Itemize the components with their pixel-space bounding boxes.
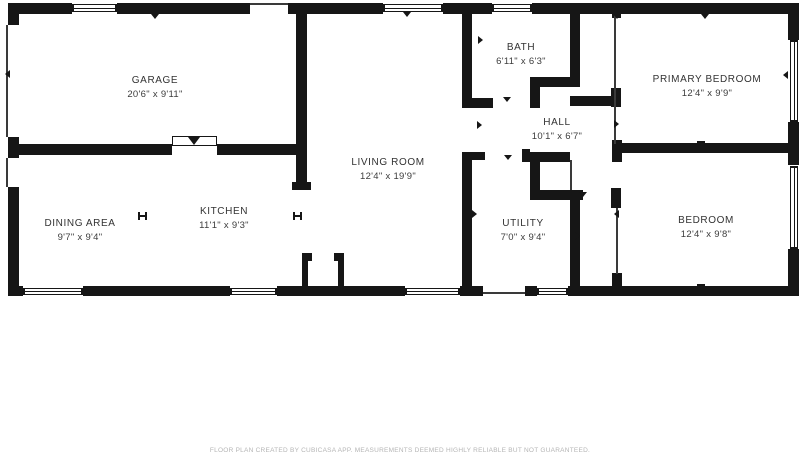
room-name: BEDROOM [678,214,734,228]
wall-segment [8,3,19,25]
wall-segment [788,249,799,296]
measure-tick [697,141,705,150]
room-dimensions: 9'7" x 9'4" [44,231,115,245]
room-label-utility: UTILITY 7'0" x 9'4" [501,217,546,245]
opening-line [483,292,525,294]
window-glyph [405,288,460,295]
room-label-hall: HALL 10'1" x 6'7" [532,116,582,144]
wall-segment [530,77,580,87]
room-dimensions: 12'4" x 9'9" [653,87,762,101]
wall-segment [522,149,530,155]
door-tick [614,120,619,128]
opening-line [6,25,8,137]
door-tick [477,121,482,129]
room-dimensions: 20'6" x 9'11" [127,88,182,102]
wall-segment [8,286,23,296]
wall-segment [8,144,172,155]
wall-segment [611,88,621,107]
door-tick [614,210,619,218]
door-tick [403,12,411,17]
room-label-dining-area: DINING AREA 9'7" x 9'4" [44,217,115,245]
room-boundary-tick [293,212,302,220]
room-name: DINING AREA [44,217,115,231]
wall-segment [611,188,621,208]
wall-segment [217,144,307,155]
wall-segment [612,143,799,153]
wall-segment [117,3,250,14]
room-dimensions: 12'4" x 19'9" [351,170,424,184]
room-label-living-room: LIVING ROOM 12'4" x 19'9" [351,156,424,184]
door-tick [504,155,512,160]
wall-segment [462,152,472,286]
room-name: GARAGE [127,74,182,88]
window-glyph [23,288,83,295]
wall-segment [292,182,311,190]
wall-segment [8,187,19,296]
room-name: BATH [496,41,546,55]
room-boundary-tick [138,212,147,220]
wall-segment [530,87,540,108]
wall-segment [277,286,405,296]
window-glyph [492,4,532,12]
room-label-primary-bedroom: PRIMARY BEDROOM 12'4" x 9'9" [653,73,762,101]
room-name: UTILITY [501,217,546,231]
window-glyph [383,4,443,12]
wall-segment [570,198,580,286]
door-tick [701,14,709,19]
door-tick [151,14,159,19]
window-glyph [72,4,117,12]
room-dimensions: 7'0" x 9'4" [501,231,546,245]
entrance-arrow-icon [188,137,200,145]
door-tick [613,14,621,19]
window-glyph [790,40,798,122]
room-label-bedroom: BEDROOM 12'4" x 9'8" [678,214,734,242]
wall-segment [462,98,493,108]
wall-segment [612,273,622,286]
disclaimer-text: FLOOR PLAN CREATED BY CUBICASA APP. MEAS… [0,447,800,454]
door-tick [5,70,10,78]
room-name: PRIMARY BEDROOM [653,73,762,87]
wall-segment [302,253,312,261]
wall-segment [530,162,540,193]
wall-segment [83,286,230,296]
window-glyph [790,166,798,249]
opening-line [250,3,288,5]
door-tick [503,97,511,102]
door-tick [579,192,587,197]
wall-segment [788,3,799,40]
room-label-kitchen: KITCHEN 11'1" x 9'3" [199,205,249,233]
room-label-garage: GARAGE 20'6" x 9'11" [127,74,182,102]
room-dimensions: 11'1" x 9'3" [199,219,249,233]
wall-segment [525,286,537,296]
room-name: HALL [532,116,582,130]
wall-segment [472,152,485,160]
wall-segment [296,3,307,190]
room-name: LIVING ROOM [351,156,424,170]
wall-segment [460,286,483,296]
room-dimensions: 6'11" x 6'3" [496,55,546,69]
door-tick [783,71,788,79]
measure-tick [697,284,705,293]
door-tick [472,210,477,218]
floor-plan: GARAGE 20'6" x 9'11" LIVING ROOM 12'4" x… [0,0,800,463]
room-dimensions: 12'4" x 9'8" [678,228,734,242]
wall-segment [568,286,799,296]
opening-line [6,158,8,187]
wall-segment [570,3,580,87]
room-name: KITCHEN [199,205,249,219]
room-dimensions: 10'1" x 6'7" [532,130,582,144]
wall-segment [334,253,344,261]
room-label-bath: BATH 6'11" x 6'3" [496,41,546,69]
door-tick [575,232,580,240]
opening-line [570,160,572,190]
wall-segment [462,3,472,108]
window-glyph [537,288,568,295]
window-glyph [230,288,277,295]
door-tick [478,36,483,44]
